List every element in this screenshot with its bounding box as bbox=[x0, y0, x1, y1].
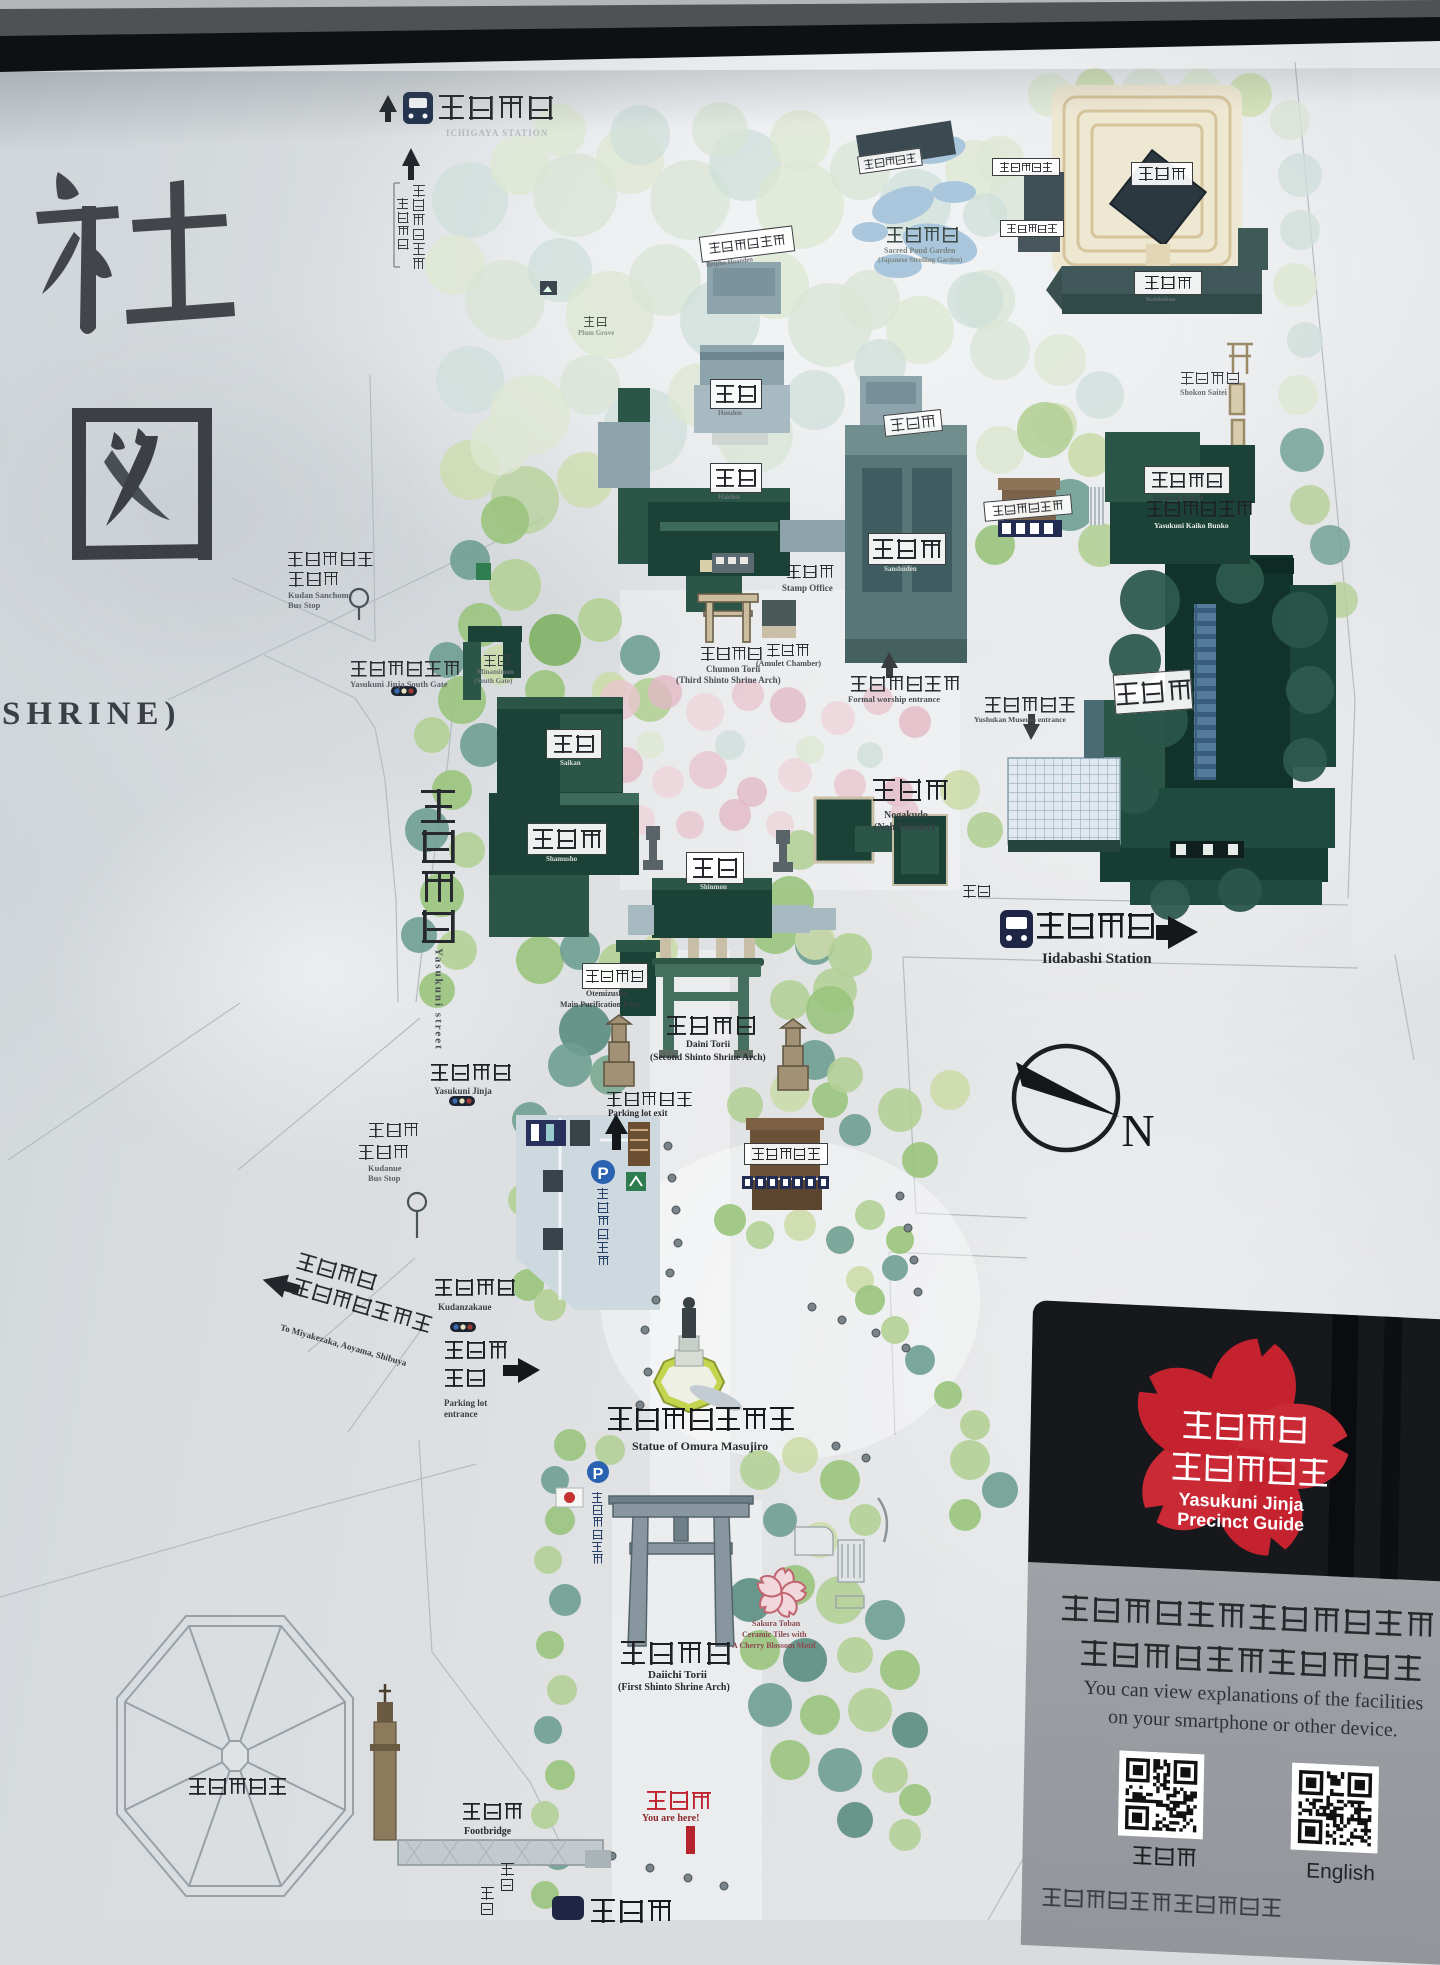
svg-text:P: P bbox=[593, 1466, 604, 1483]
svg-text:P: P bbox=[597, 1164, 608, 1183]
svg-text:N: N bbox=[1121, 1105, 1154, 1156]
